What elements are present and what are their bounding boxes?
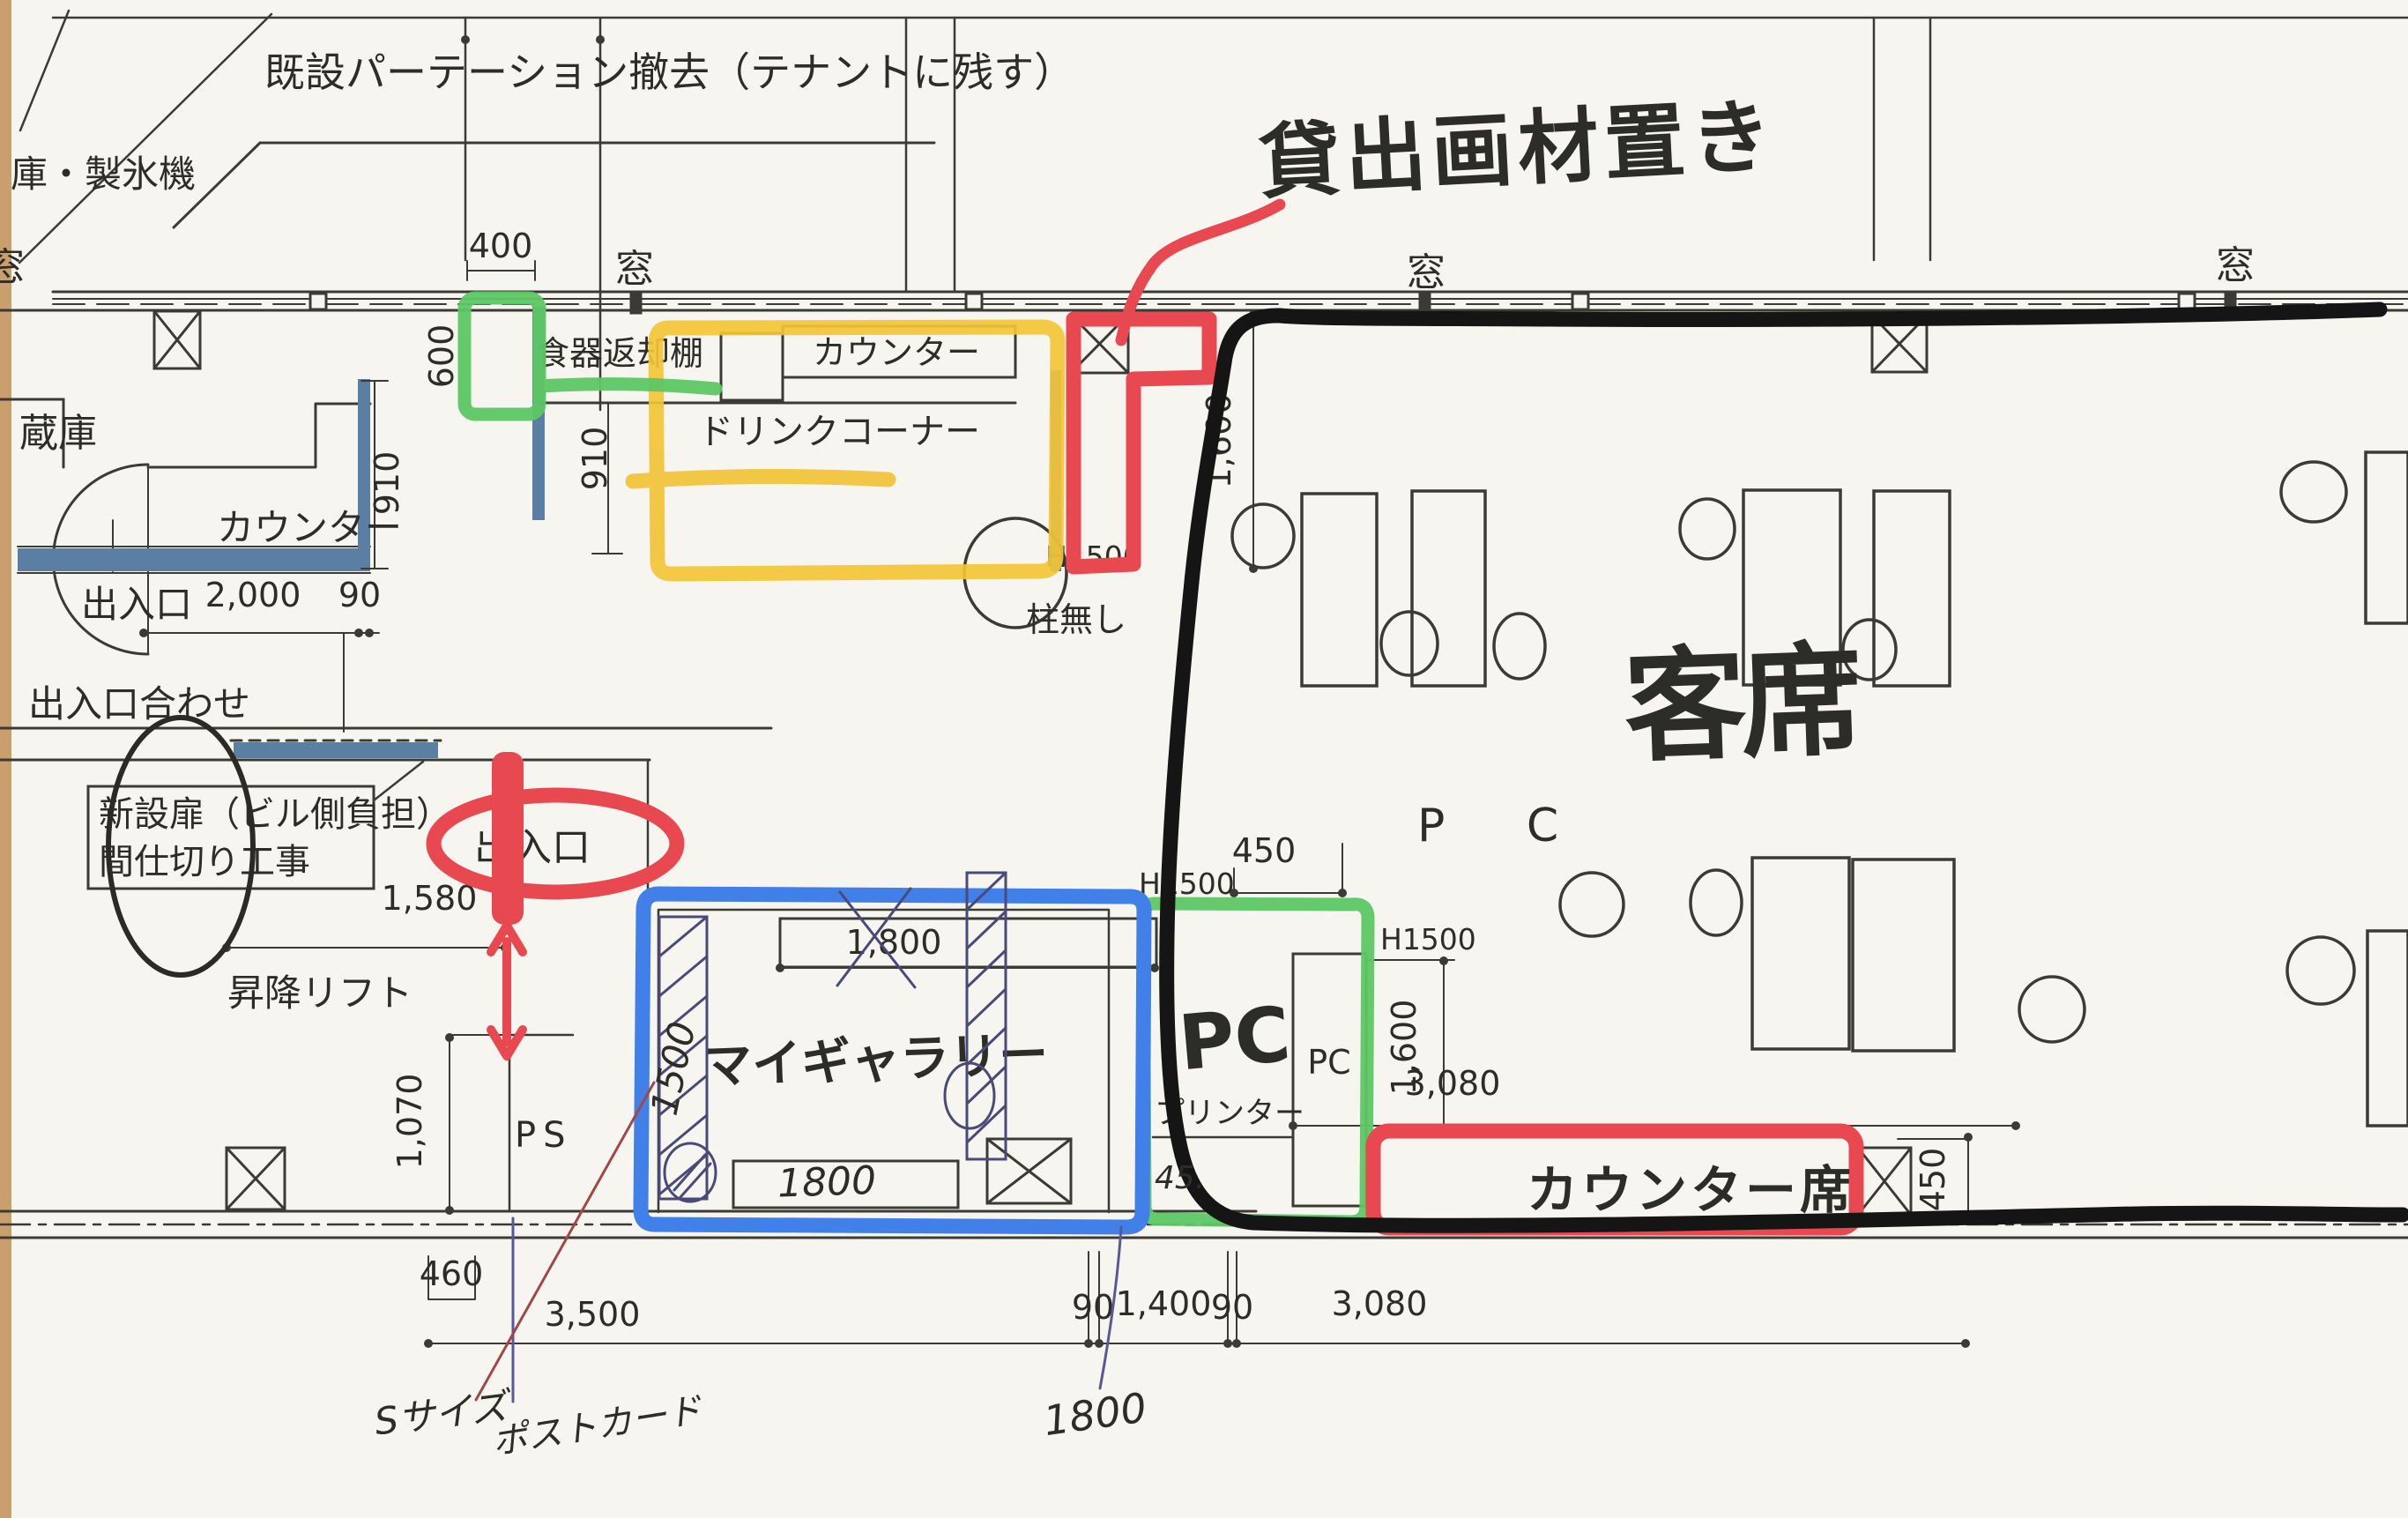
dim-3500: 3,500 (545, 1295, 641, 1334)
storage-label: 蔵庫 (19, 411, 97, 456)
dim-2000: 2,000 (205, 576, 301, 614)
green-underline-dish-return (540, 384, 716, 389)
counter-wall-blue (18, 548, 370, 571)
dim-3080-a: 3,080 (1405, 1064, 1501, 1103)
lift-label: 昇降リフト (227, 971, 412, 1015)
dim-1400: 1,400 (1116, 1284, 1212, 1323)
counter-label-kitchen: カウンター (217, 506, 402, 549)
guest-seats-note: 客席 (1622, 629, 1861, 779)
drink-corner-label: ドリンクコーナー (698, 412, 980, 452)
dim-450-a: 450 (1232, 831, 1297, 870)
counter-label-top: カウンター (813, 333, 980, 372)
ps-label: PS (515, 1115, 573, 1156)
dim-1580: 1,580 (382, 879, 478, 918)
entrance-align-label: 出入口合わせ (28, 682, 250, 726)
dim-90-a: 90 (338, 576, 381, 614)
dim-3080-b: 3,080 (1332, 1284, 1428, 1323)
red-bar-door (492, 752, 524, 925)
floor-plan-svg: 庫・製氷機 既設パーテーション撤去（テナントに残す） 窓 窓 窓 窓 400 6… (0, 0, 2408, 1518)
h1500-b: H1500 (1380, 922, 1476, 956)
pen-45: 45. (1155, 1160, 1205, 1196)
wall-blue (234, 742, 438, 758)
window-label-1: 窓 (615, 247, 654, 292)
new-door-note-1: 新設扉（ビル側負担） (99, 794, 451, 835)
dim-400: 400 (469, 227, 533, 265)
dim-450-b: 450 (1914, 1148, 1952, 1212)
entrance-label-gallery: 出入口 (474, 825, 591, 870)
floor-plan-photo: 庫・製氷機 既設パーテーション撤去（テナントに残す） 窓 窓 窓 窓 400 6… (0, 0, 2408, 1518)
dim-600: 600 (422, 324, 461, 389)
pc-note: PC (1176, 991, 1294, 1089)
dim-460: 460 (420, 1254, 484, 1293)
pc-box-label: PC (1307, 1043, 1350, 1082)
pen-1800-gallery: 1800 (777, 1158, 877, 1207)
entrance-label-kitchen: 出入口 (81, 583, 192, 626)
ice-machine-label: 庫・製氷機 (11, 153, 196, 196)
window-mullion (631, 294, 641, 313)
window-label-3: 窓 (2216, 243, 2255, 288)
window-label-2: 窓 (1407, 250, 1446, 295)
pc-area-label: P C (1417, 800, 1592, 852)
window-label-left: 窓 (0, 245, 25, 290)
dim-1070: 1,070 (390, 1074, 429, 1170)
window-mullion (1420, 294, 1430, 313)
partition-note: 既設パーテーション撤去（テナントに残す） (264, 48, 1074, 96)
dish-return-label: 食器返却棚 (536, 334, 703, 373)
no-pillar-label: 柱無し (1026, 600, 1126, 639)
dim-90-b: 90 (1072, 1288, 1114, 1327)
dim-90-c: 90 (1211, 1288, 1253, 1327)
counter-seats-note: カウンター席 (1527, 1160, 1854, 1220)
new-door-note-2: 間仕切り工事 (99, 842, 310, 882)
dim-910-b: 910 (576, 427, 614, 491)
h1500-a: H1500 (1139, 867, 1235, 901)
